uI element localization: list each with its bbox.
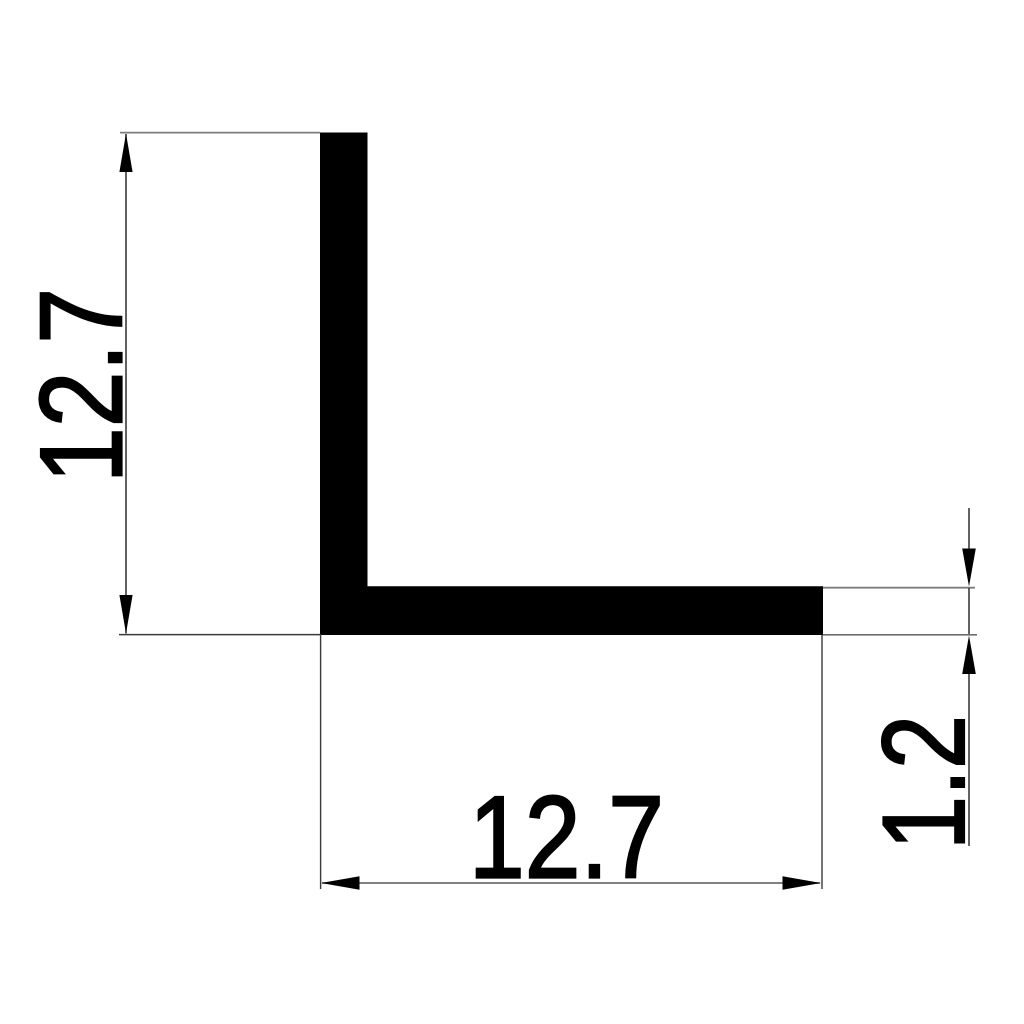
svg-text:1.2: 1.2 bbox=[859, 715, 989, 850]
svg-text:12.7: 12.7 bbox=[17, 288, 147, 483]
svg-text:12.7: 12.7 bbox=[469, 773, 664, 903]
